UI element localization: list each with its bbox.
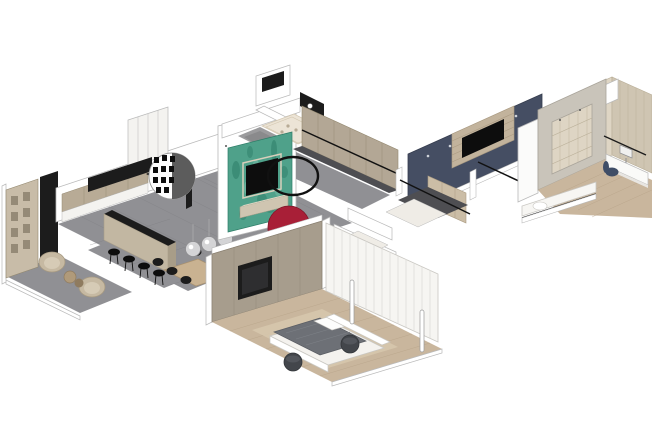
apartment-axonometric-render [0, 0, 652, 435]
shelf-accent-wall [6, 179, 38, 278]
tub-fixture-2 [294, 128, 297, 131]
cut-wall-left [2, 184, 6, 284]
dining-chair-1 [153, 258, 164, 266]
render-canvas [0, 0, 652, 435]
black-tall-cabinet [40, 171, 58, 266]
plank-wall-spot-2 [579, 109, 581, 111]
pendant-highlight-2 [205, 240, 210, 245]
armchair-1-cushion [44, 257, 60, 269]
tube-lamp-1 [350, 280, 354, 324]
divider-wall [518, 119, 538, 202]
pendant-highlight-1 [189, 245, 194, 250]
plank-wall-spot-1 [559, 119, 561, 121]
tube-lamp-2 [420, 310, 424, 352]
corridor-wall-post-2 [470, 169, 476, 200]
bedroom-cut-wall [206, 254, 212, 325]
side-table-1 [64, 271, 76, 283]
desk-chair-back [603, 161, 609, 173]
hallway-closets [293, 106, 398, 209]
dining-chair-3 [181, 276, 192, 284]
corridor-wall-post-1 [396, 167, 402, 196]
pouf-1-top [343, 338, 357, 345]
dining-chair-2 [167, 267, 178, 275]
side-table-2 [75, 279, 84, 288]
pouf-2-top [286, 356, 300, 363]
daybed-pillow [533, 202, 547, 210]
tub-fixture-3 [280, 130, 283, 133]
tub-fixture-1 [286, 124, 289, 127]
perforated-screen [149, 153, 195, 199]
right-wing [386, 77, 652, 227]
vanity-sink [308, 104, 313, 109]
pendant-sphere-1 [186, 242, 201, 257]
armchair-2-cushion [84, 282, 100, 294]
wall-spot-1 [225, 145, 227, 147]
